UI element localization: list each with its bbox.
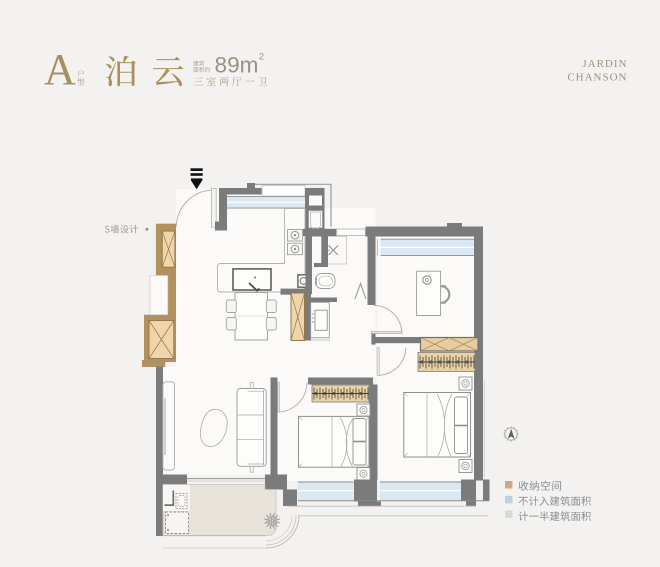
svg-text:2: 2 xyxy=(259,52,264,63)
svg-text:CHANSON: CHANSON xyxy=(567,72,627,84)
svg-text:JARDIN: JARDIN xyxy=(582,58,627,70)
svg-text:89m: 89m xyxy=(215,52,259,77)
svg-text:A: A xyxy=(44,45,76,94)
